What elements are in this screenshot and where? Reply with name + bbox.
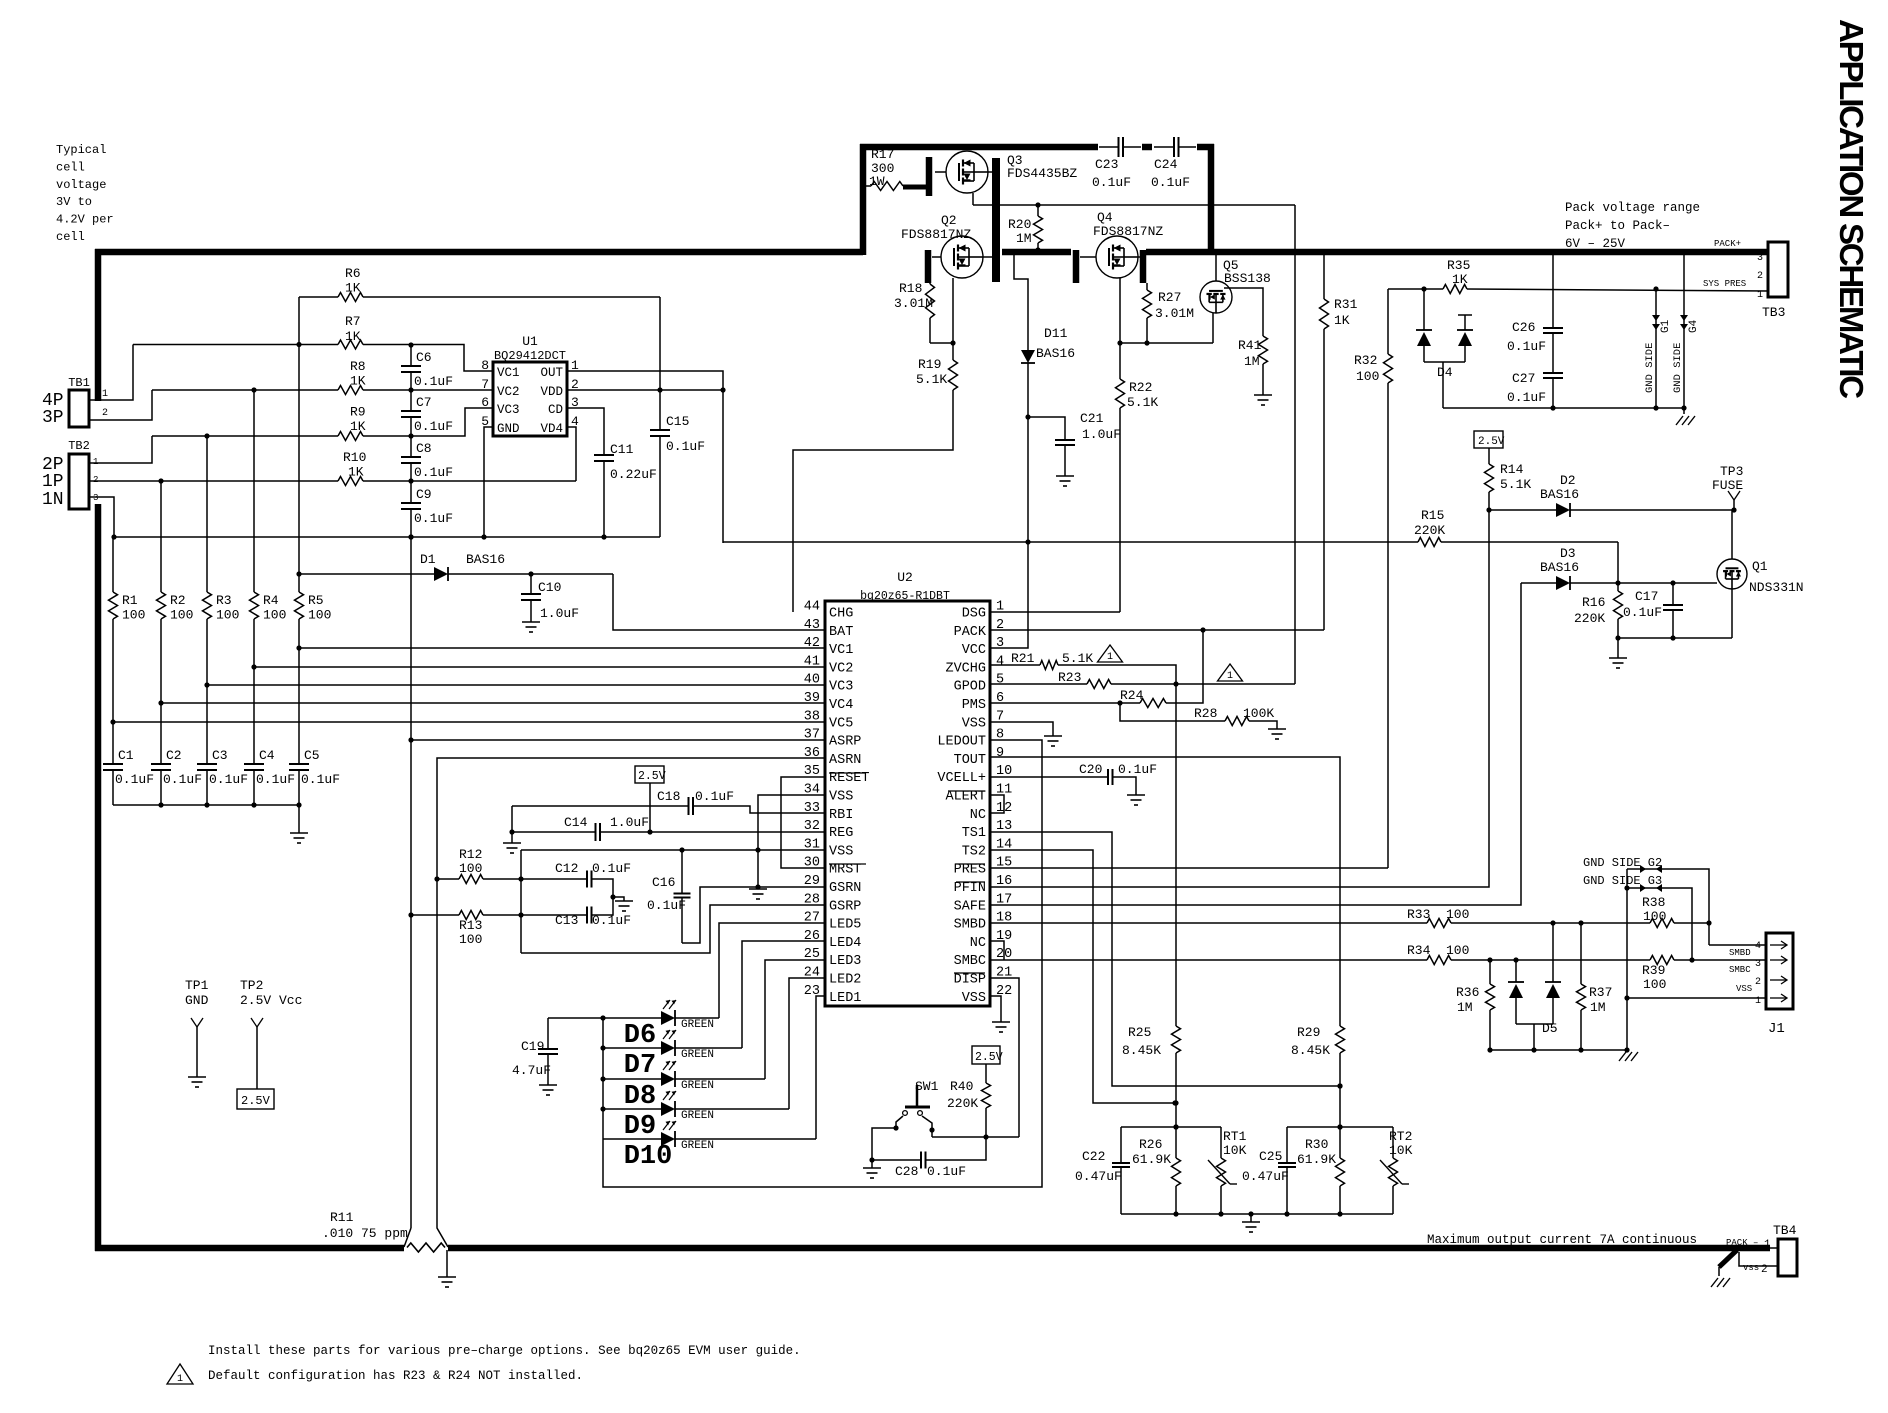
svg-text:1: 1 [102, 389, 108, 400]
svg-text:VC1: VC1 [497, 366, 520, 380]
svg-text:PMS: PMS [962, 698, 986, 713]
svg-text:GND SIDE: GND SIDE [1672, 343, 1684, 393]
svg-text:VDD: VDD [540, 385, 563, 399]
svg-text:3.01M: 3.01M [1155, 306, 1194, 321]
svg-text:RT2: RT2 [1389, 1129, 1412, 1144]
svg-text:Typical: Typical [56, 143, 106, 157]
svg-text:C16: C16 [652, 875, 675, 890]
svg-text:BAS16: BAS16 [1540, 560, 1579, 575]
svg-text:.010 75 ppm: .010 75 ppm [322, 1226, 408, 1241]
svg-text:U2: U2 [897, 570, 913, 585]
svg-text:VSS: VSS [1736, 984, 1752, 994]
svg-text:APPLICATION SCHEMATIC: APPLICATION SCHEMATIC [1833, 19, 1870, 398]
svg-text:PACK+: PACK+ [1714, 239, 1741, 249]
svg-text:40: 40 [804, 673, 820, 688]
svg-text:42: 42 [804, 636, 820, 651]
svg-text:NDS331N: NDS331N [1749, 580, 1804, 595]
svg-text:TOUT: TOUT [954, 753, 986, 768]
svg-text:C23: C23 [1095, 157, 1118, 172]
svg-text:GREEN: GREEN [681, 1080, 714, 1092]
svg-text:VC4: VC4 [829, 698, 853, 713]
svg-text:6: 6 [481, 395, 489, 410]
svg-text:D3: D3 [1560, 546, 1576, 561]
svg-text:100K: 100K [1243, 706, 1274, 721]
svg-text:3: 3 [1757, 253, 1763, 264]
svg-text:220K: 220K [1414, 523, 1445, 538]
svg-text:PACK: PACK [954, 625, 987, 640]
svg-text:Default configuration has R23: Default configuration has R23 & R24 NOT … [208, 1369, 583, 1383]
svg-text:C28: C28 [895, 1164, 918, 1179]
svg-text:C20: C20 [1079, 762, 1102, 777]
svg-text:BAS16: BAS16 [466, 552, 505, 567]
svg-text:0.22uF: 0.22uF [610, 467, 657, 482]
svg-text:R1: R1 [122, 593, 138, 608]
svg-text:SAFE: SAFE [954, 899, 986, 914]
svg-text:C27: C27 [1512, 371, 1535, 386]
svg-text:0.1uF: 0.1uF [592, 861, 631, 876]
svg-text:1K: 1K [348, 465, 364, 480]
svg-text:VC3: VC3 [829, 680, 853, 695]
svg-text:5.1K: 5.1K [1062, 651, 1093, 666]
svg-text:REG: REG [829, 826, 853, 841]
svg-text:cell: cell [56, 160, 85, 174]
svg-text:1: 1 [1764, 1239, 1771, 1251]
svg-text:R24: R24 [1120, 688, 1144, 703]
svg-text:10K: 10K [1223, 1143, 1247, 1158]
svg-text:3: 3 [1755, 959, 1761, 970]
svg-text:1M: 1M [1590, 1000, 1606, 1015]
svg-text:Q4: Q4 [1097, 210, 1113, 225]
svg-text:GPOD: GPOD [954, 680, 986, 695]
svg-text:OUT: OUT [540, 366, 563, 380]
svg-text:J1: J1 [1768, 1021, 1785, 1037]
svg-text:R27: R27 [1158, 290, 1181, 305]
svg-text:TB2: TB2 [68, 439, 90, 453]
svg-text:voltage: voltage [56, 178, 106, 192]
svg-text:R37: R37 [1589, 985, 1612, 1000]
svg-text:TS2: TS2 [962, 844, 986, 859]
svg-text:100: 100 [1643, 977, 1666, 992]
svg-text:8: 8 [481, 358, 489, 373]
svg-text:R21: R21 [1011, 651, 1035, 666]
svg-text:cell: cell [56, 230, 85, 244]
svg-text:VC3: VC3 [497, 403, 520, 417]
svg-text:41: 41 [804, 654, 820, 669]
svg-text:C10: C10 [538, 580, 561, 595]
svg-text:0.1uF: 0.1uF [1623, 605, 1662, 620]
svg-text:R30: R30 [1305, 1137, 1328, 1152]
svg-text:SYS PRES: SYS PRES [1703, 279, 1746, 289]
svg-text:GND SIDE: GND SIDE [1644, 343, 1656, 393]
svg-text:C18: C18 [657, 789, 680, 804]
svg-text:0.1uF: 0.1uF [1092, 175, 1131, 190]
svg-text:1: 1 [1107, 652, 1113, 663]
svg-text:FDS8817NZ: FDS8817NZ [901, 227, 971, 242]
svg-text:0.1uF: 0.1uF [927, 1164, 966, 1179]
svg-text:0.1uF: 0.1uF [1151, 175, 1190, 190]
svg-text:SMBC: SMBC [1729, 965, 1751, 975]
svg-text:1.0uF: 1.0uF [540, 606, 579, 621]
svg-text:7: 7 [481, 377, 489, 392]
svg-text:5.1K: 5.1K [1500, 477, 1531, 492]
svg-text:RT1: RT1 [1223, 1129, 1247, 1144]
svg-text:1N: 1N [42, 490, 64, 510]
svg-text:C2: C2 [166, 748, 182, 763]
svg-text:R36: R36 [1456, 985, 1479, 1000]
svg-text:5.1K: 5.1K [1127, 395, 1158, 410]
svg-text:R38: R38 [1642, 895, 1665, 910]
svg-text:D11: D11 [1044, 326, 1068, 341]
svg-text:R22: R22 [1129, 380, 1152, 395]
svg-text:4: 4 [571, 414, 579, 429]
svg-text:RBI: RBI [829, 808, 853, 823]
svg-text:R17: R17 [871, 147, 894, 162]
svg-text:PRES: PRES [954, 863, 986, 878]
svg-text:100: 100 [308, 608, 331, 623]
svg-text:1K: 1K [1452, 272, 1468, 287]
svg-text:R9: R9 [350, 405, 366, 420]
svg-text:100: 100 [170, 608, 193, 623]
svg-text:1K: 1K [345, 281, 361, 296]
svg-text:2.5V: 2.5V [975, 1051, 1003, 1064]
svg-text:R35: R35 [1447, 258, 1470, 273]
svg-text:1M: 1M [1244, 354, 1260, 369]
svg-text:LED5: LED5 [829, 918, 861, 933]
svg-text:C9: C9 [416, 487, 432, 502]
svg-text:R15: R15 [1421, 508, 1444, 523]
svg-text:G1: G1 [1660, 319, 1672, 333]
svg-text:PACK –: PACK – [1726, 1238, 1758, 1248]
svg-text:R12: R12 [459, 847, 482, 862]
svg-text:R5: R5 [308, 593, 324, 608]
svg-text:TP2: TP2 [240, 978, 263, 993]
svg-text:2: 2 [1757, 271, 1763, 282]
svg-text:bq20z65-R1DBT: bq20z65-R1DBT [860, 590, 950, 603]
svg-text:0.1uF: 0.1uF [256, 772, 295, 787]
svg-text:61.9K: 61.9K [1297, 1152, 1336, 1167]
svg-text:0.1uF: 0.1uF [163, 772, 202, 787]
svg-text:100: 100 [459, 861, 482, 876]
svg-text:0.1uF: 0.1uF [666, 439, 705, 454]
svg-text:C3: C3 [212, 748, 228, 763]
svg-text:D6: D6 [624, 1021, 656, 1051]
svg-text:1: 1 [1755, 996, 1761, 1007]
svg-text:SMBD: SMBD [1729, 948, 1751, 958]
svg-text:NC: NC [970, 808, 986, 823]
svg-text:vss: vss [1743, 1263, 1759, 1273]
svg-text:R25: R25 [1128, 1025, 1151, 1040]
svg-text:VD4: VD4 [540, 422, 563, 436]
svg-text:C21: C21 [1080, 411, 1104, 426]
svg-text:TP1: TP1 [185, 978, 209, 993]
svg-text:2: 2 [102, 408, 108, 419]
svg-text:0.1uF: 0.1uF [592, 913, 631, 928]
svg-text:LED1: LED1 [829, 991, 861, 1006]
svg-text:GREEN: GREEN [681, 1110, 714, 1122]
svg-text:220K: 220K [1574, 611, 1605, 626]
svg-text:0.1uF: 0.1uF [1507, 339, 1546, 354]
svg-text:R10: R10 [343, 450, 366, 465]
svg-text:D1: D1 [420, 552, 436, 567]
svg-text:ALERT: ALERT [945, 790, 986, 805]
svg-text:0.1uF: 0.1uF [414, 374, 453, 389]
svg-text:LED2: LED2 [829, 973, 861, 988]
svg-text:LED3: LED3 [829, 954, 861, 969]
svg-text:100: 100 [1446, 943, 1469, 958]
svg-text:Install these parts for variou: Install these parts for various pre–char… [208, 1344, 801, 1358]
svg-text:NC: NC [970, 936, 986, 951]
svg-text:R6: R6 [345, 266, 361, 281]
svg-text:VSS: VSS [962, 991, 986, 1006]
svg-text:GND: GND [185, 993, 209, 1008]
svg-text:D10: D10 [624, 1142, 673, 1172]
svg-text:Q1: Q1 [1752, 559, 1768, 574]
svg-text:Pack+ to Pack–: Pack+ to Pack– [1565, 219, 1670, 233]
svg-text:DISP: DISP [954, 973, 986, 988]
svg-text:2: 2 [93, 475, 98, 485]
svg-text:BSS138: BSS138 [1224, 271, 1271, 286]
svg-text:3.01M: 3.01M [894, 296, 933, 311]
svg-text:SMBD: SMBD [954, 918, 986, 933]
svg-text:C17: C17 [1635, 589, 1658, 604]
svg-text:4: 4 [1755, 941, 1761, 952]
svg-text:TP3: TP3 [1720, 464, 1743, 479]
svg-text:Q2: Q2 [941, 213, 957, 228]
svg-text:1K: 1K [350, 374, 366, 389]
svg-text:C15: C15 [666, 414, 689, 429]
svg-text:R29: R29 [1297, 1025, 1320, 1040]
svg-text:R20: R20 [1008, 217, 1031, 232]
svg-text:10K: 10K [1389, 1143, 1413, 1158]
svg-text:0.47uF: 0.47uF [1242, 1169, 1289, 1184]
svg-text:0.1uF: 0.1uF [1118, 762, 1157, 777]
svg-text:2.5V Vcc: 2.5V Vcc [240, 993, 302, 1008]
svg-text:100: 100 [263, 608, 286, 623]
svg-text:R3: R3 [216, 593, 232, 608]
svg-text:0.47uF: 0.47uF [1075, 1169, 1122, 1184]
svg-text:C19: C19 [521, 1039, 544, 1054]
svg-text:0.1uF: 0.1uF [414, 465, 453, 480]
svg-text:R13: R13 [459, 918, 482, 933]
svg-text:1K: 1K [350, 419, 366, 434]
svg-text:VC1: VC1 [829, 643, 853, 658]
svg-text:9: 9 [996, 746, 1004, 761]
svg-text:C24: C24 [1154, 157, 1178, 172]
svg-text:R40: R40 [950, 1079, 973, 1094]
svg-text:PFIN: PFIN [954, 881, 986, 896]
svg-text:GREEN: GREEN [681, 1019, 714, 1031]
svg-text:C5: C5 [304, 748, 320, 763]
svg-text:D2: D2 [1560, 473, 1576, 488]
svg-text:VSS: VSS [962, 716, 986, 731]
svg-text:R28: R28 [1194, 706, 1217, 721]
svg-text:R16: R16 [1582, 595, 1605, 610]
svg-text:VSS: VSS [829, 844, 853, 859]
svg-text:R39: R39 [1642, 963, 1665, 978]
svg-text:C25: C25 [1259, 1149, 1282, 1164]
svg-text:C26: C26 [1512, 320, 1535, 335]
svg-text:1M: 1M [1016, 231, 1032, 246]
svg-text:Pack voltage range: Pack voltage range [1565, 201, 1700, 215]
svg-text:1K: 1K [345, 329, 361, 344]
svg-text:0.1uF: 0.1uF [695, 789, 734, 804]
svg-text:100: 100 [459, 932, 482, 947]
svg-text:1: 1 [93, 457, 98, 467]
svg-text:BAS16: BAS16 [1036, 346, 1075, 361]
svg-text:R4: R4 [263, 593, 279, 608]
svg-text:G4: G4 [1688, 319, 1700, 333]
svg-text:GSRN: GSRN [829, 881, 861, 896]
svg-text:R7: R7 [345, 314, 361, 329]
svg-text:D4: D4 [1437, 365, 1453, 380]
svg-text:C6: C6 [416, 350, 432, 365]
svg-text:0.1uF: 0.1uF [414, 419, 453, 434]
svg-text:3P: 3P [42, 408, 64, 428]
svg-text:C14: C14 [564, 815, 588, 830]
svg-text:0.1uF: 0.1uF [301, 772, 340, 787]
svg-text:D9: D9 [624, 1112, 656, 1142]
svg-text:R33: R33 [1407, 907, 1430, 922]
svg-text:220K: 220K [947, 1096, 978, 1111]
svg-text:BAT: BAT [829, 625, 853, 640]
svg-text:6V – 25V: 6V – 25V [1565, 237, 1626, 251]
svg-text:2: 2 [1755, 977, 1761, 988]
svg-text:38: 38 [804, 709, 820, 724]
svg-text:4.7uF: 4.7uF [512, 1063, 551, 1078]
svg-text:ZVCHG: ZVCHG [945, 661, 986, 676]
svg-text:1P: 1P [42, 472, 64, 492]
svg-text:BQ29412DCT: BQ29412DCT [494, 349, 566, 363]
svg-text:39: 39 [804, 691, 820, 706]
svg-text:100: 100 [1356, 369, 1379, 384]
svg-text:C22: C22 [1082, 1149, 1105, 1164]
svg-text:3: 3 [93, 493, 98, 503]
svg-text:0.1uF: 0.1uF [1507, 390, 1546, 405]
svg-text:TS1: TS1 [962, 826, 986, 841]
svg-text:1K: 1K [1334, 313, 1350, 328]
svg-text:1.0uF: 1.0uF [1082, 427, 1121, 442]
svg-text:100: 100 [122, 608, 145, 623]
svg-text:2.5V: 2.5V [241, 1094, 271, 1108]
svg-text:4: 4 [996, 654, 1004, 669]
svg-text:8.45K: 8.45K [1291, 1043, 1330, 1058]
svg-text:R14: R14 [1500, 462, 1524, 477]
svg-text:1W: 1W [869, 174, 885, 189]
svg-text:0.1uF: 0.1uF [414, 511, 453, 526]
svg-text:8.45K: 8.45K [1122, 1043, 1161, 1058]
svg-text:R41: R41 [1238, 338, 1262, 353]
svg-text:GSRP: GSRP [829, 899, 861, 914]
svg-text:FUSE: FUSE [1712, 478, 1743, 493]
svg-text:GND: GND [497, 422, 520, 436]
svg-text:44: 44 [804, 600, 820, 615]
svg-text:C4: C4 [259, 748, 275, 763]
svg-text:R34: R34 [1407, 943, 1431, 958]
svg-text:R26: R26 [1139, 1137, 1162, 1152]
svg-text:C7: C7 [416, 395, 432, 410]
svg-text:1.0uF: 1.0uF [610, 815, 649, 830]
svg-text:3: 3 [996, 636, 1004, 651]
svg-text:ASRP: ASRP [829, 735, 861, 750]
svg-text:4.2V per: 4.2V per [56, 213, 114, 227]
svg-text:MRST: MRST [829, 863, 861, 878]
svg-text:100: 100 [216, 608, 239, 623]
svg-text:1: 1 [1227, 671, 1233, 682]
svg-text:R31: R31 [1334, 297, 1358, 312]
svg-text:SMBC: SMBC [954, 954, 986, 969]
svg-text:VCC: VCC [962, 643, 986, 658]
svg-text:FDS4435BZ: FDS4435BZ [1007, 166, 1077, 181]
svg-text:CD: CD [548, 403, 563, 417]
svg-text:LEDOUT: LEDOUT [937, 735, 986, 750]
svg-text:D7: D7 [624, 1051, 656, 1081]
svg-text:ASRN: ASRN [829, 753, 861, 768]
svg-text:C12: C12 [555, 861, 578, 876]
svg-text:FDS8817NZ: FDS8817NZ [1093, 224, 1163, 239]
svg-text:1M: 1M [1457, 1000, 1473, 1015]
svg-text:D8: D8 [624, 1082, 656, 1112]
svg-text:C13: C13 [555, 913, 578, 928]
svg-text:0.1uF: 0.1uF [209, 772, 248, 787]
svg-text:Maximum output current 7A cont: Maximum output current 7A continuous [1427, 1233, 1697, 1247]
svg-text:2.5V: 2.5V [1478, 436, 1505, 448]
svg-text:DSG: DSG [962, 607, 986, 622]
svg-text:100: 100 [1446, 907, 1469, 922]
svg-text:TB1: TB1 [68, 376, 90, 390]
svg-text:2.5V: 2.5V [638, 770, 666, 783]
svg-text:BAS16: BAS16 [1540, 487, 1579, 502]
svg-text:R23: R23 [1058, 670, 1081, 685]
svg-text:VC5: VC5 [829, 716, 853, 731]
svg-text:R18: R18 [899, 281, 922, 296]
svg-text:C1: C1 [118, 748, 134, 763]
svg-text:VC2: VC2 [829, 661, 853, 676]
svg-text:CHG: CHG [829, 607, 853, 622]
svg-text:5: 5 [996, 673, 1004, 688]
svg-text:C11: C11 [610, 442, 634, 457]
svg-text:C8: C8 [416, 441, 432, 456]
svg-text:3V to: 3V to [56, 195, 92, 209]
svg-text:D5: D5 [1542, 1021, 1558, 1036]
svg-text:GND SIDE G3: GND SIDE G3 [1583, 874, 1662, 888]
svg-text:R19: R19 [918, 357, 941, 372]
svg-text:61.9K: 61.9K [1132, 1152, 1171, 1167]
svg-text:U1: U1 [522, 334, 538, 349]
svg-text:0.1uF: 0.1uF [115, 772, 154, 787]
svg-text:R11: R11 [330, 1210, 354, 1225]
svg-text:VCELL+: VCELL+ [937, 771, 986, 786]
svg-text:GND SIDE G2: GND SIDE G2 [1583, 856, 1662, 870]
svg-text:R2: R2 [170, 593, 186, 608]
svg-text:SW1: SW1 [915, 1079, 939, 1094]
svg-text:43: 43 [804, 618, 820, 633]
svg-text:VC2: VC2 [497, 385, 520, 399]
svg-text:0.1uF: 0.1uF [647, 898, 686, 913]
svg-text:R32: R32 [1354, 353, 1377, 368]
svg-text:GREEN: GREEN [681, 1140, 714, 1152]
svg-text:TB4: TB4 [1773, 1223, 1797, 1238]
svg-text:5.1K: 5.1K [916, 372, 947, 387]
svg-text:GREEN: GREEN [681, 1049, 714, 1061]
svg-text:LED4: LED4 [829, 936, 861, 951]
svg-text:100: 100 [1643, 909, 1666, 924]
svg-text:1: 1 [177, 1374, 183, 1385]
svg-text:TB3: TB3 [1762, 305, 1785, 320]
svg-text:R8: R8 [350, 359, 366, 374]
svg-text:VSS: VSS [829, 790, 853, 805]
